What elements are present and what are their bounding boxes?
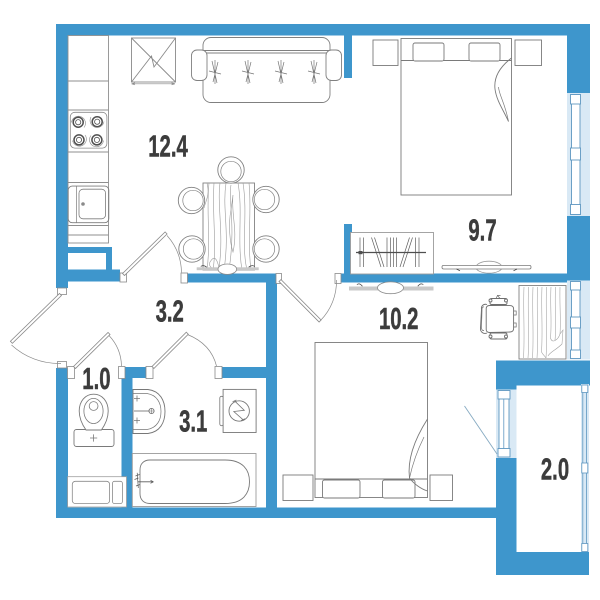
- svg-text:9.7: 9.7: [468, 212, 496, 247]
- svg-text:2.0: 2.0: [541, 451, 569, 486]
- svg-text:10.2: 10.2: [379, 301, 418, 336]
- svg-text:12.4: 12.4: [148, 128, 188, 163]
- svg-text:3.2: 3.2: [156, 293, 184, 328]
- svg-text:1.0: 1.0: [82, 360, 110, 395]
- svg-text:3.1: 3.1: [179, 403, 207, 438]
